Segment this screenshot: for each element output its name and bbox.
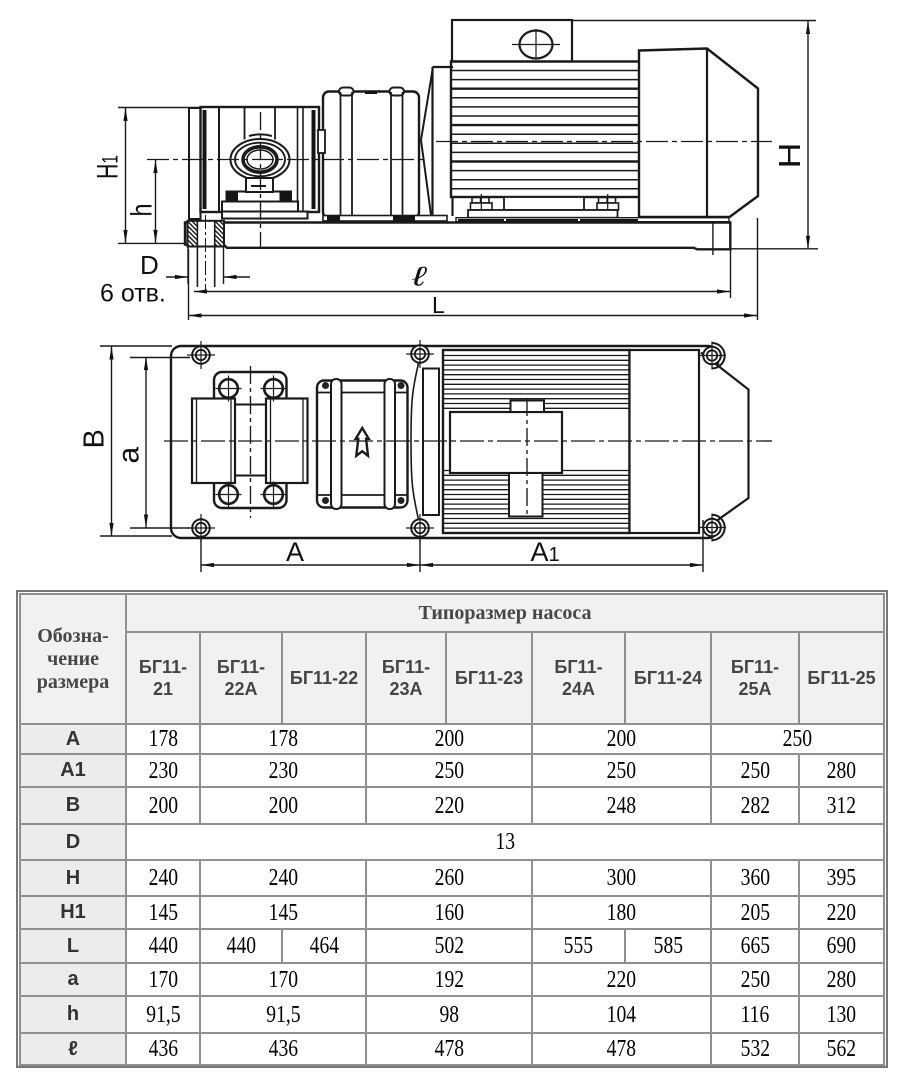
svg-text:h: h	[126, 204, 159, 217]
svg-text:L: L	[432, 292, 445, 318]
svg-text:A1: A1	[531, 537, 560, 567]
svg-text:D: D	[140, 250, 159, 280]
svg-text:A: A	[286, 537, 304, 567]
svg-text:B: B	[79, 429, 111, 448]
svg-text:H1: H1	[92, 155, 125, 179]
svg-text:6 отв.: 6 отв.	[100, 280, 166, 308]
svg-text:ℓ: ℓ	[411, 262, 427, 292]
svg-text:a: a	[113, 447, 146, 464]
svg-text:H: H	[772, 143, 807, 169]
